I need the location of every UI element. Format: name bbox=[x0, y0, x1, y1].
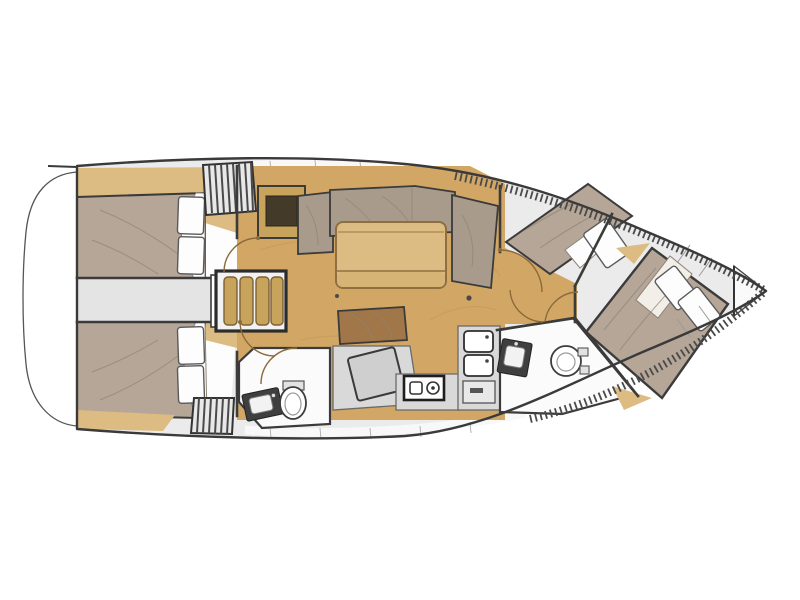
galley-cabinet bbox=[463, 381, 495, 403]
yacht-floor-plan-canvas: Sailing yacht interior floor plan bbox=[0, 0, 800, 600]
pillow bbox=[177, 237, 204, 275]
pillow bbox=[177, 197, 204, 235]
floor-fitting-dot bbox=[466, 295, 471, 300]
nav-seat bbox=[338, 307, 407, 344]
floor-fitting-dot bbox=[335, 294, 339, 298]
pillow bbox=[177, 327, 204, 365]
engine-corridor bbox=[77, 275, 221, 327]
galley-stove bbox=[404, 376, 444, 400]
swim-platform bbox=[23, 166, 77, 426]
companionway-steps bbox=[216, 271, 286, 331]
louver-hatch-bottom bbox=[191, 398, 234, 434]
aft-head-toilet bbox=[280, 381, 306, 419]
yacht-floor-plan bbox=[0, 0, 800, 600]
louver-hatch-top bbox=[203, 162, 256, 215]
forward-head-sink bbox=[497, 338, 532, 377]
aft-head bbox=[239, 348, 330, 428]
saloon-table bbox=[336, 222, 446, 288]
